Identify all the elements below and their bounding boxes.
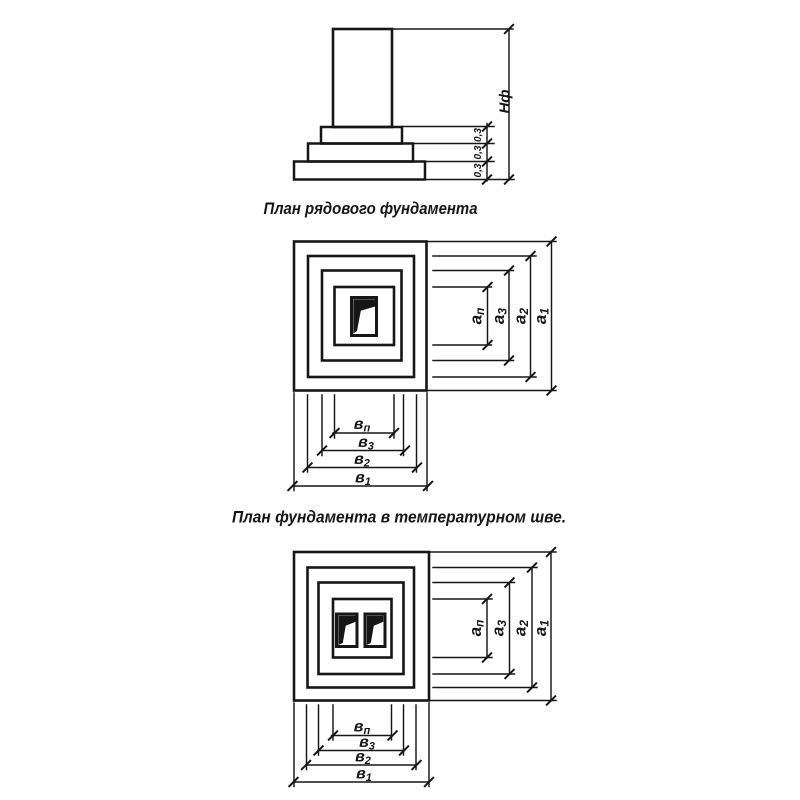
svg-text:вп: вп <box>354 416 371 435</box>
svg-text:а2: а2 <box>511 620 532 636</box>
svg-text:а3: а3 <box>489 308 510 324</box>
svg-text:а2: а2 <box>511 308 532 324</box>
svg-text:0,3: 0,3 <box>473 163 484 177</box>
svg-text:в3: в3 <box>358 434 374 453</box>
svg-text:а3: а3 <box>489 620 510 636</box>
svg-text:ап: ап <box>466 619 487 636</box>
svg-text:ап: ап <box>467 307 488 324</box>
svg-text:а1: а1 <box>531 620 552 636</box>
svg-text:План фундамента в температурно: План фундамента в температурном шве. <box>232 508 566 527</box>
svg-text:0,3: 0,3 <box>473 128 484 142</box>
svg-text:0,3: 0,3 <box>473 145 484 159</box>
svg-text:в1: в1 <box>356 766 372 785</box>
svg-text:План рядового фундамента: План рядового фундамента <box>264 199 478 218</box>
svg-text:в2: в2 <box>354 451 370 470</box>
svg-text:Нф: Нф <box>497 89 514 113</box>
svg-text:а1: а1 <box>531 308 552 324</box>
svg-text:в1: в1 <box>355 470 371 489</box>
